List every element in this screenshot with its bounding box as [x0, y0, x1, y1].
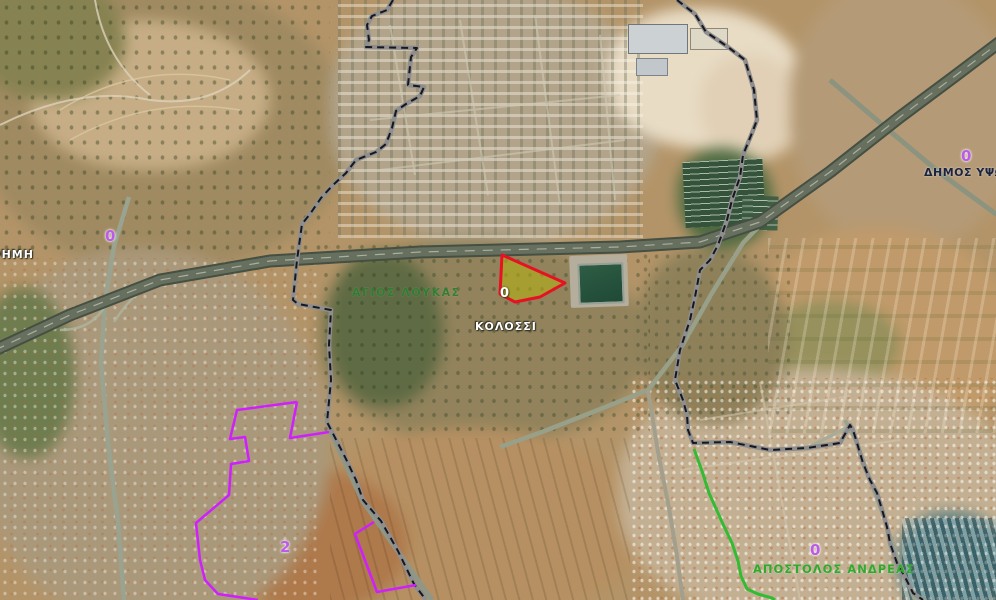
tree-texture-northwest [0, 0, 330, 255]
warehouse-roofs-southeast [902, 518, 996, 600]
reservoir [577, 262, 624, 305]
terrain-fields-northeast [790, 0, 996, 250]
field-rows-east [768, 238, 996, 433]
industrial-building-1 [628, 24, 688, 54]
greenhouses-small [741, 195, 778, 230]
map-viewport[interactable]: ΕΡΗΜΗ ΚΟΛΟΣΣΙ ΑΓΙΟΣ ΛΟΥΚΑΣ ΑΠΟΣΤΟΛΟΣ ΑΝΔ… [0, 0, 996, 600]
field-rows-south [330, 438, 630, 600]
industrial-building-2 [690, 28, 728, 50]
houses-texture-southwest [0, 258, 322, 600]
industrial-building-3 [636, 58, 668, 76]
houses-texture-north [338, 0, 643, 238]
